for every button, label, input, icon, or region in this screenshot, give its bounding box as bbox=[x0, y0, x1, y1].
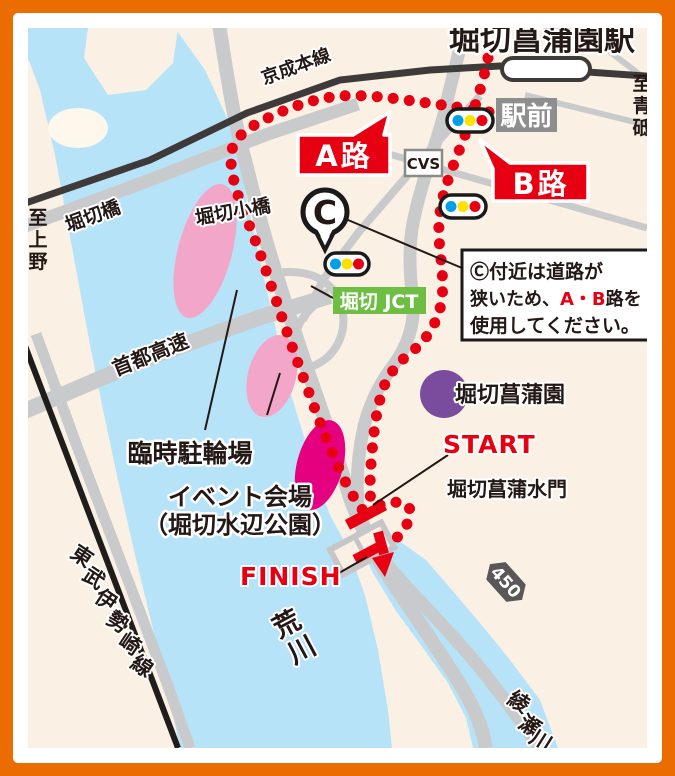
route-b-label: B路 bbox=[512, 167, 569, 201]
point-c-letter: C bbox=[313, 193, 337, 232]
to-aoto-label: 至 青 砥 bbox=[632, 73, 647, 139]
note-line2-pre: 狭いため、 bbox=[469, 288, 560, 310]
svg-text:野: 野 bbox=[28, 251, 47, 273]
svg-text:上: 上 bbox=[28, 229, 47, 251]
venue-label-line1: イベント会場 bbox=[168, 483, 312, 511]
route-450-shield: 450 bbox=[480, 555, 531, 608]
map-page: { "station": {"name": "堀切菖蒲園駅"}, "railwa… bbox=[0, 0, 675, 776]
signal-red-lamp bbox=[353, 259, 364, 270]
station-name: 堀切菖蒲園駅 bbox=[449, 28, 635, 58]
leader-start bbox=[373, 455, 448, 505]
finish-arrow-shaft bbox=[378, 532, 384, 554]
point-c-pin: C bbox=[303, 190, 347, 250]
iris-garden-label: 堀切菖蒲園 bbox=[455, 383, 565, 408]
note-line-1: Ⓒ付近は道路が bbox=[470, 260, 603, 283]
venue-label-line2: （堀切水辺公園） bbox=[144, 511, 336, 539]
signal-yellow-lamp bbox=[458, 201, 469, 212]
signal-red-lamp bbox=[477, 115, 488, 126]
signal-blue-lamp bbox=[330, 259, 341, 270]
jct-label-box: 堀切 JCT bbox=[333, 287, 426, 314]
to-ueno-label: 至 上 野 bbox=[28, 207, 47, 273]
signal-blue-lamp bbox=[453, 115, 464, 126]
floodgate-label: 堀切菖蒲水門 bbox=[447, 477, 567, 501]
finish-label: FINISH bbox=[240, 562, 342, 591]
bicycle-parking-label: 臨時駐輪場 bbox=[127, 439, 252, 468]
traffic-signal-ekimae bbox=[447, 109, 493, 132]
route-b-callout: B路 bbox=[480, 140, 588, 201]
ekimae-label: 駅前 bbox=[500, 101, 552, 132]
svg-text:至: 至 bbox=[28, 207, 47, 229]
traffic-signal-b bbox=[440, 195, 486, 218]
note-line2-post: 路を bbox=[606, 288, 642, 310]
note-line-2: 狭いため、A・B路を bbox=[469, 288, 642, 310]
svg-text:青: 青 bbox=[632, 95, 647, 117]
signal-yellow-lamp bbox=[342, 259, 353, 270]
signal-blue-lamp bbox=[446, 201, 457, 212]
signal-yellow-lamp bbox=[465, 115, 476, 126]
note-line-3: 使用してください。 bbox=[469, 315, 640, 337]
svg-text:至: 至 bbox=[632, 73, 647, 95]
svg-text:砥: 砥 bbox=[632, 117, 647, 139]
route-a-label: A路 bbox=[315, 139, 372, 173]
keisei-line-label: 京成本線 bbox=[258, 44, 333, 89]
event-route-map: 堀切菖蒲園駅 C 堀切菖蒲園 A路 B路 CVS bbox=[28, 28, 647, 748]
cvs-store-marker: CVS bbox=[405, 150, 442, 176]
note-box: Ⓒ付近は道路が 狭いため、A・B路を 使用してください。 bbox=[462, 250, 647, 340]
note-line2-red: A・B bbox=[560, 289, 606, 310]
signal-red-lamp bbox=[470, 201, 481, 212]
map-canvas: 堀切菖蒲園駅 C 堀切菖蒲園 A路 B路 CVS bbox=[28, 28, 647, 748]
start-label: START bbox=[443, 430, 536, 459]
traffic-signal-c bbox=[325, 253, 369, 275]
cvs-label: CVS bbox=[407, 155, 440, 173]
jct-label: 堀切 JCT bbox=[340, 291, 419, 313]
ekimae-label-box: 駅前 bbox=[496, 98, 557, 132]
station-capsule bbox=[502, 58, 590, 80]
